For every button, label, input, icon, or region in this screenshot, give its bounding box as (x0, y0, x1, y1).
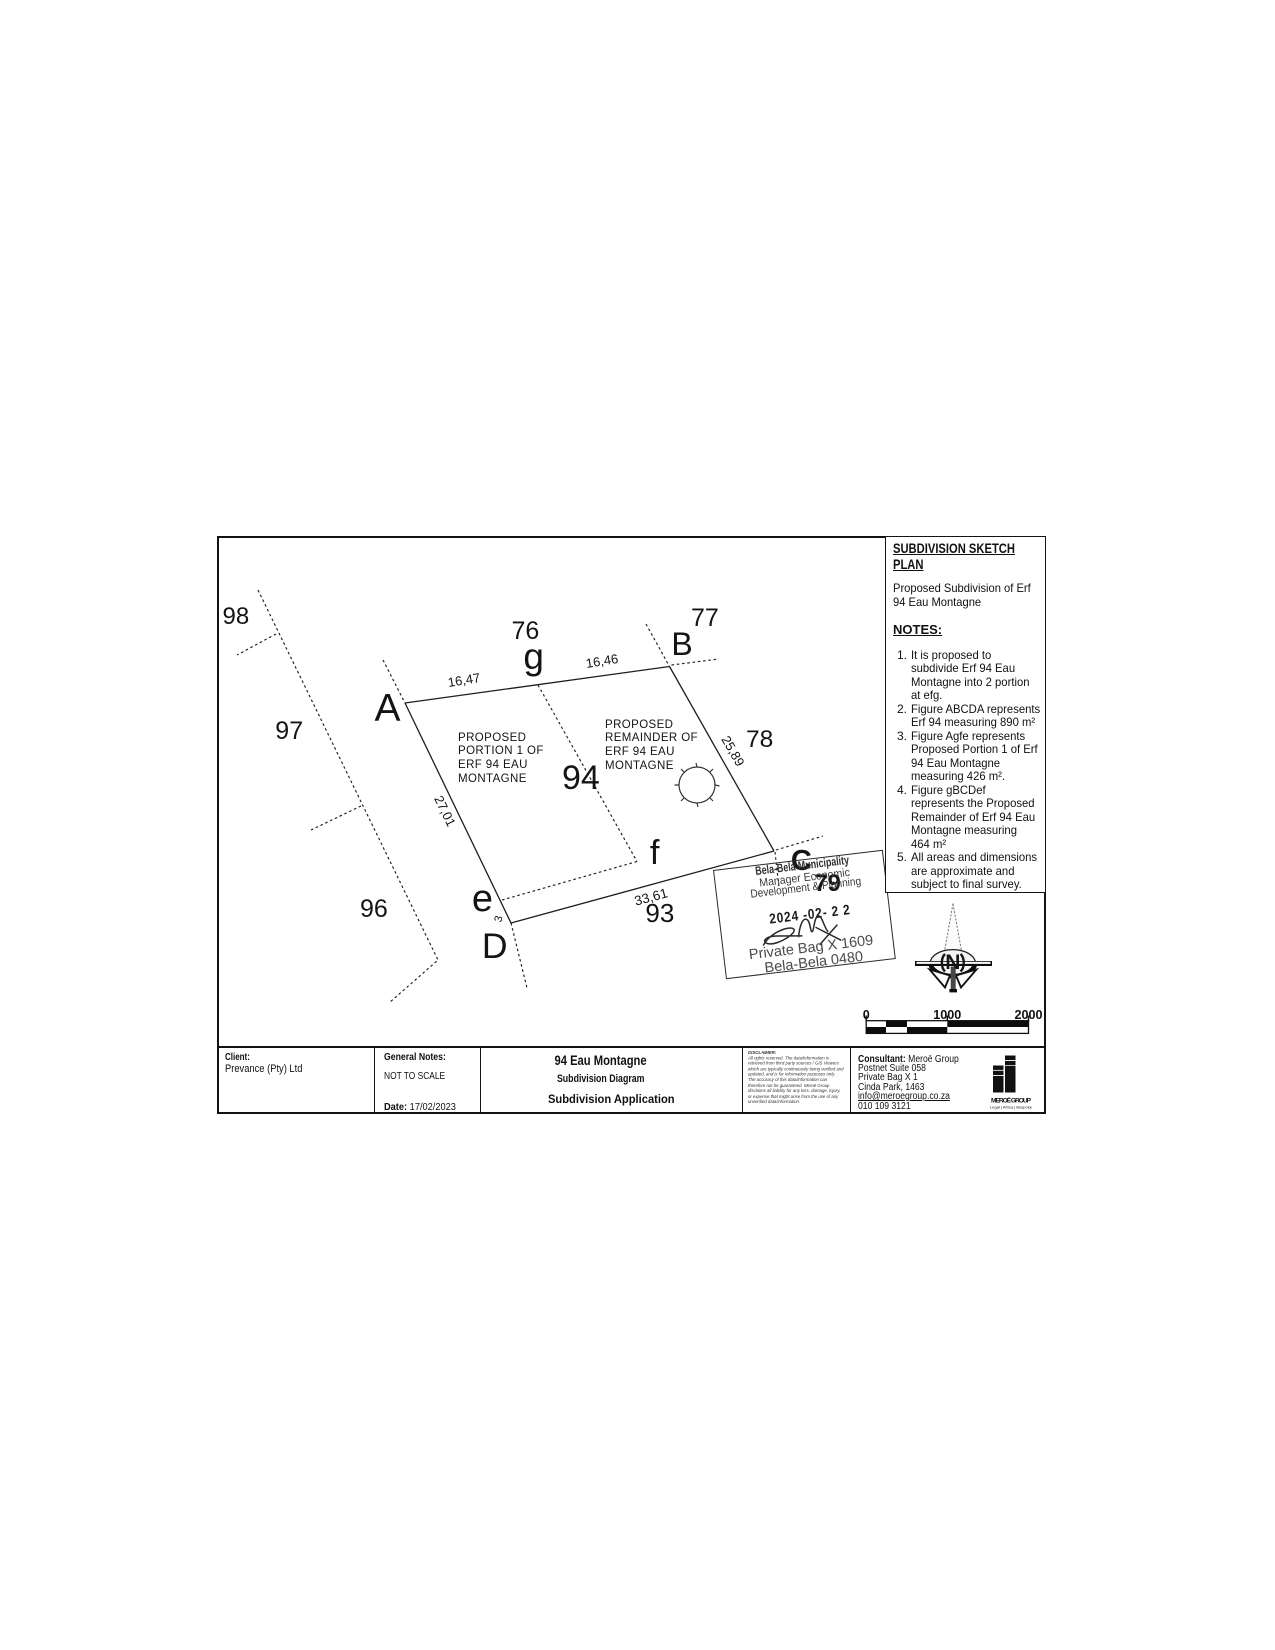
svg-text:Legal | Africa | Bespoke: Legal | Africa | Bespoke (990, 1105, 1033, 1110)
svg-text:MEROË GROUP: MEROË GROUP (991, 1097, 1032, 1105)
